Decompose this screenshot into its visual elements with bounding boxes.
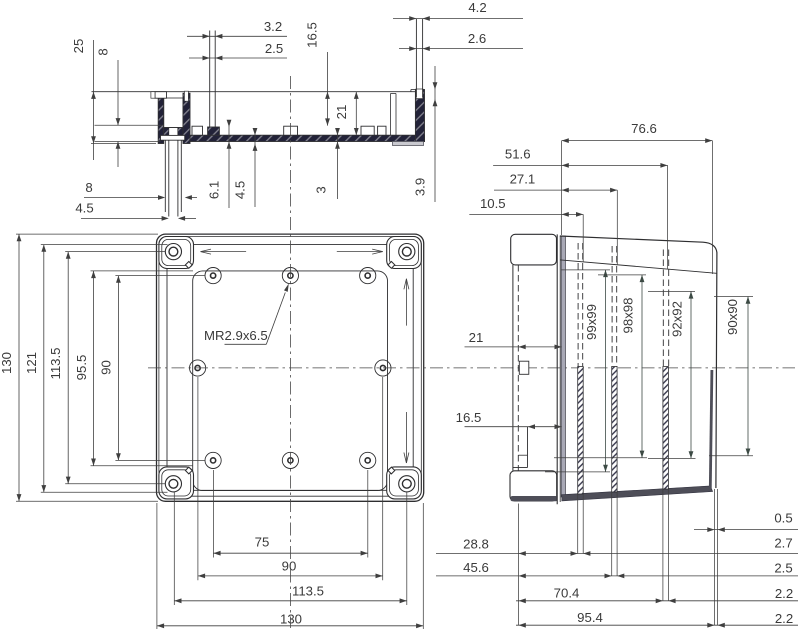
svg-text:113.5: 113.5 bbox=[292, 584, 324, 599]
svg-text:3.2: 3.2 bbox=[264, 19, 282, 34]
svg-text:2.5: 2.5 bbox=[774, 560, 792, 575]
svg-text:8: 8 bbox=[96, 48, 111, 55]
svg-text:2.2: 2.2 bbox=[775, 611, 793, 626]
svg-text:45.6: 45.6 bbox=[463, 560, 489, 575]
svg-text:92x92: 92x92 bbox=[670, 301, 685, 337]
svg-text:8: 8 bbox=[85, 180, 92, 195]
svg-text:130: 130 bbox=[0, 352, 14, 374]
svg-text:90: 90 bbox=[282, 559, 297, 574]
svg-text:113.5: 113.5 bbox=[48, 347, 63, 379]
svg-text:51.6: 51.6 bbox=[505, 147, 531, 162]
svg-text:2.7: 2.7 bbox=[774, 536, 792, 551]
svg-text:90: 90 bbox=[99, 360, 114, 375]
svg-text:98x98: 98x98 bbox=[621, 298, 636, 334]
svg-text:4.5: 4.5 bbox=[233, 181, 248, 199]
svg-text:99x99: 99x99 bbox=[584, 304, 599, 340]
svg-text:16.5: 16.5 bbox=[456, 410, 482, 425]
svg-text:75: 75 bbox=[255, 535, 270, 550]
svg-text:95.4: 95.4 bbox=[577, 610, 603, 625]
svg-text:21: 21 bbox=[334, 105, 349, 120]
svg-text:MR2.9x6.5: MR2.9x6.5 bbox=[204, 328, 268, 343]
svg-text:3.9: 3.9 bbox=[413, 178, 428, 196]
svg-text:2.2: 2.2 bbox=[775, 586, 793, 601]
svg-text:121: 121 bbox=[24, 352, 39, 374]
svg-text:6.1: 6.1 bbox=[207, 181, 222, 199]
svg-text:90x90: 90x90 bbox=[725, 299, 740, 335]
svg-text:27.1: 27.1 bbox=[510, 172, 536, 187]
svg-text:95.5: 95.5 bbox=[74, 355, 89, 381]
svg-text:4.5: 4.5 bbox=[75, 201, 93, 216]
svg-text:4.2: 4.2 bbox=[468, 0, 486, 15]
svg-text:25: 25 bbox=[71, 39, 86, 54]
svg-text:28.8: 28.8 bbox=[463, 537, 489, 552]
svg-text:10.5: 10.5 bbox=[480, 196, 506, 211]
svg-text:16.5: 16.5 bbox=[305, 22, 320, 48]
svg-text:2.5: 2.5 bbox=[265, 41, 283, 56]
svg-text:70.4: 70.4 bbox=[554, 586, 580, 601]
svg-text:3: 3 bbox=[314, 186, 329, 193]
svg-text:21: 21 bbox=[469, 330, 484, 345]
svg-text:76.6: 76.6 bbox=[631, 121, 657, 136]
svg-text:130: 130 bbox=[280, 612, 302, 627]
svg-text:0.5: 0.5 bbox=[774, 511, 792, 526]
svg-text:2.6: 2.6 bbox=[468, 31, 486, 46]
